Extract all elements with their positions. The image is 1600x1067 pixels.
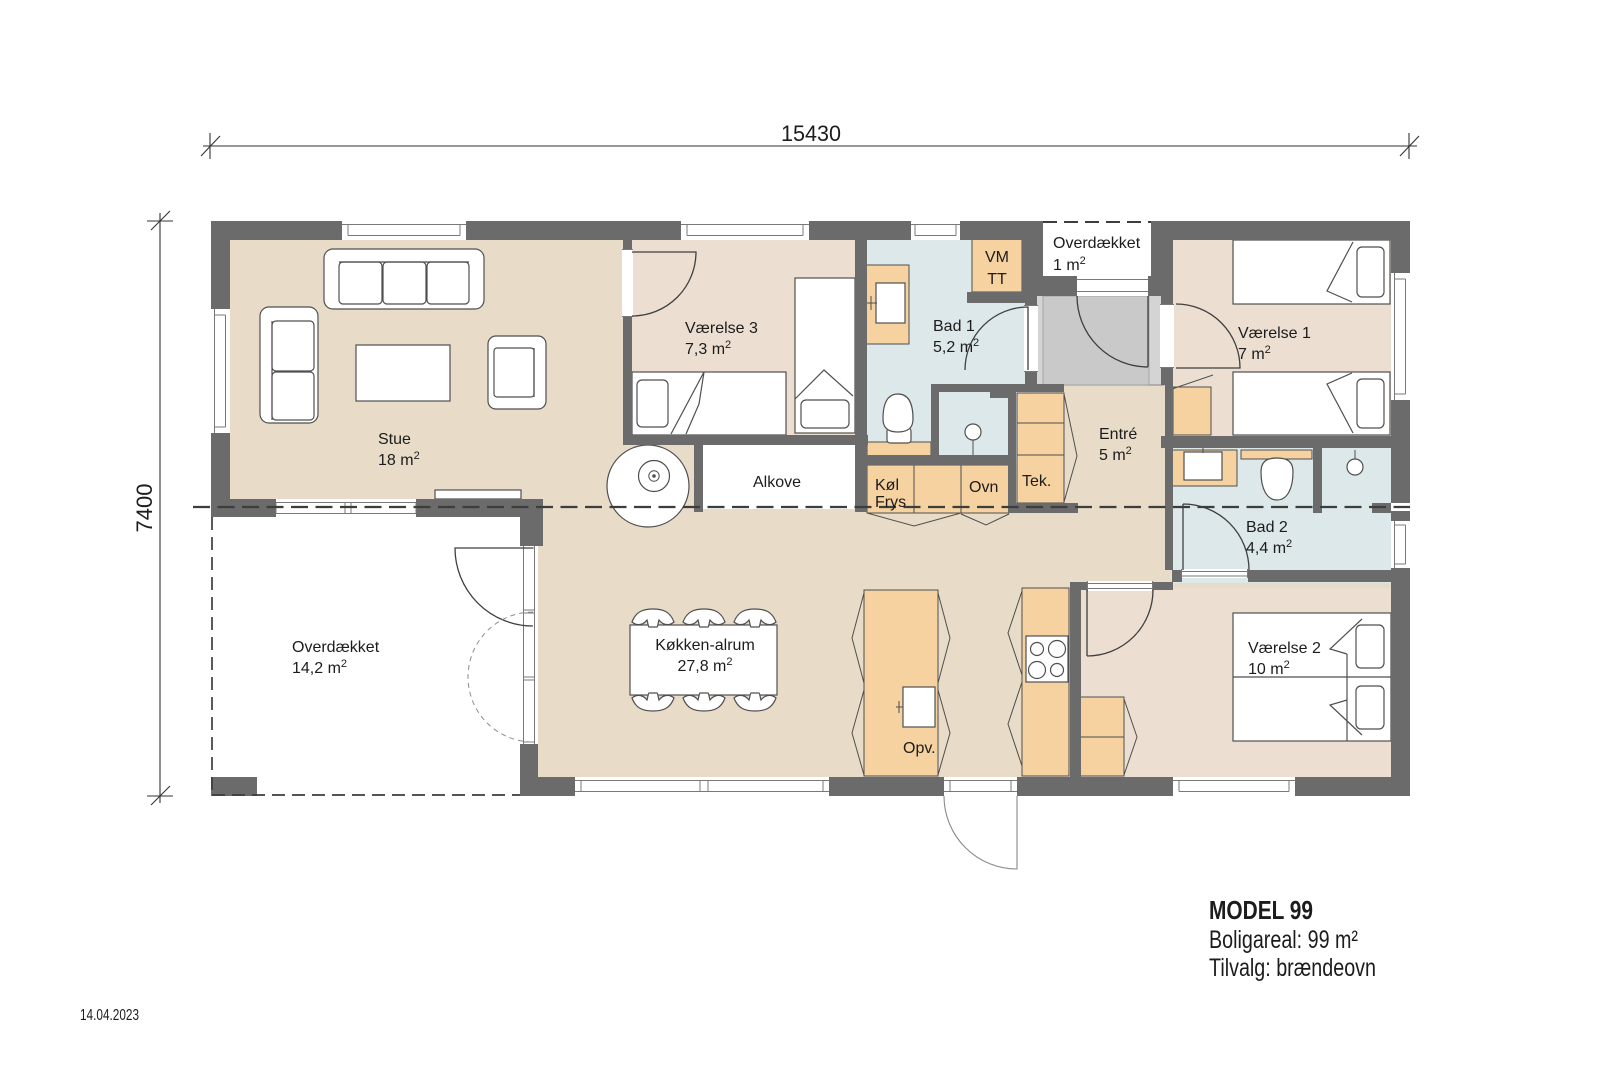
svg-text:Køkken-alrum: Køkken-alrum [655,637,755,654]
svg-text:Tilvalg: brændeovn: Tilvalg: brændeovn [1209,954,1376,982]
svg-text:Overdækket: Overdækket [292,639,380,656]
svg-text:TT: TT [987,271,1007,288]
svg-text:14.04.2023: 14.04.2023 [80,1007,139,1024]
svg-text:Alkove: Alkove [753,474,801,491]
svg-text:Opv.: Opv. [903,740,936,757]
svg-text:7,3 m2: 7,3 m2 [685,339,731,358]
svg-text:Overdækket: Overdækket [1053,235,1141,252]
svg-text:Køl: Køl [875,477,899,494]
svg-text:27,8 m2: 27,8 m2 [677,656,732,675]
svg-text:Tek.: Tek. [1022,473,1051,490]
svg-text:4,4 m2: 4,4 m2 [1246,538,1292,557]
svg-text:Værelse 3: Værelse 3 [685,320,758,337]
svg-text:5,2 m2: 5,2 m2 [933,337,979,356]
svg-text:14,2 m2: 14,2 m2 [292,658,347,677]
svg-text:Bad 2: Bad 2 [1246,519,1288,536]
svg-text:Boligareal: 99 m²: Boligareal: 99 m² [1209,926,1358,954]
svg-text:15430: 15430 [781,121,841,146]
svg-text:7400: 7400 [132,484,157,533]
svg-text:Bad 1: Bad 1 [933,318,975,335]
svg-text:Stue: Stue [378,431,411,448]
svg-text:10 m2: 10 m2 [1248,659,1290,678]
svg-text:MODEL 99: MODEL 99 [1209,895,1313,925]
svg-text:Frys: Frys [875,494,906,511]
svg-text:Entré: Entré [1099,426,1137,443]
svg-text:18 m2: 18 m2 [378,450,420,469]
svg-text:Værelse 1: Værelse 1 [1238,325,1311,342]
svg-text:Værelse 2: Værelse 2 [1248,640,1321,657]
svg-text:Ovn: Ovn [969,479,998,496]
svg-text:VM: VM [985,249,1009,266]
